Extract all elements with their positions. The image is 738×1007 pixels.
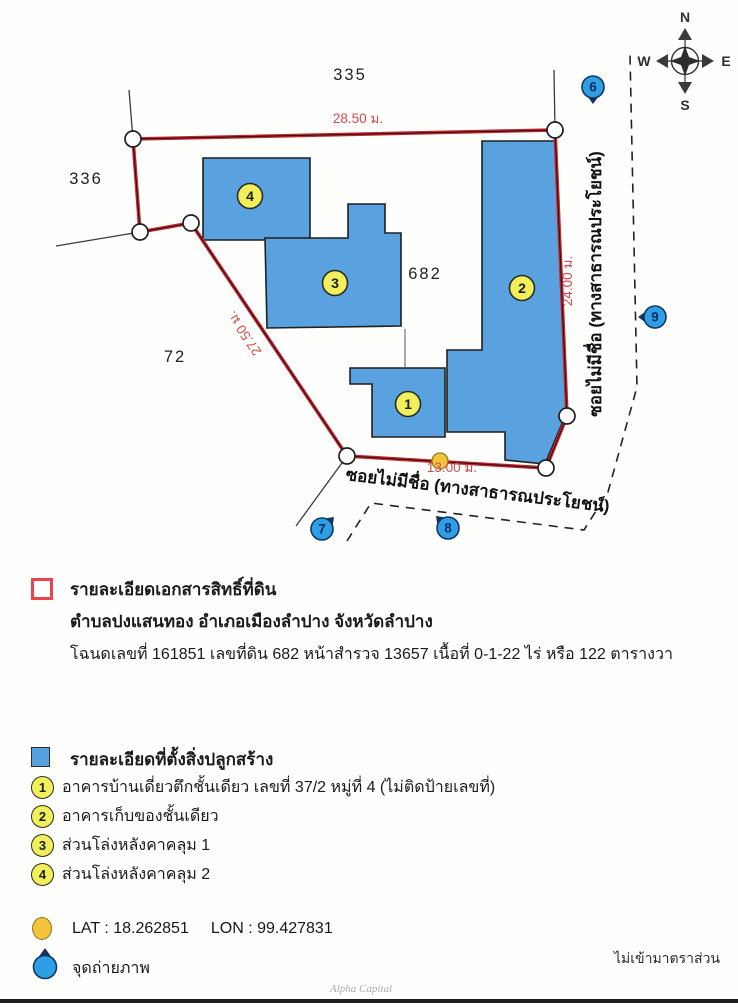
- building-legend-number-2: 2: [31, 805, 54, 828]
- buildings-legend-swatch: [31, 747, 50, 767]
- parcel-label-682: 682: [408, 265, 442, 283]
- compass-south-arrow: [678, 82, 692, 94]
- compass-s-label: S: [680, 97, 689, 113]
- building-legend-item-2: 2 อาคารเก็บของชั้นเดียว: [31, 804, 219, 829]
- building-marker-2: 2: [510, 276, 535, 301]
- building-legend-label-1: อาคารบ้านเดี่ยวตึกชั้นเดียว เลขที่ 37/2 …: [62, 775, 495, 800]
- not-to-scale-note: ไม่เข้ามาตราส่วน: [614, 948, 720, 970]
- deed-legend-swatch: [31, 578, 53, 600]
- building-marker-4: 4: [238, 184, 263, 209]
- photo-marker-7: 7: [311, 510, 341, 540]
- street-label-right: ซอยไม่มีชื่อ (ทางสาธารณประโยชน์): [583, 151, 605, 417]
- compass-west-arrow: [656, 54, 668, 68]
- compass-rose: N S W E: [637, 9, 730, 113]
- buildings-legend-title: รายละเอียดที่ตั้งสิ่งปลูกสร้าง: [70, 746, 273, 773]
- building-legend-number-3: 3: [31, 834, 54, 857]
- svg-text:2: 2: [518, 280, 526, 296]
- svg-text:9: 9: [651, 310, 659, 325]
- lon-value: LON : 99.427831: [211, 920, 333, 937]
- svg-text:1: 1: [404, 396, 412, 412]
- svg-text:8: 8: [444, 521, 452, 536]
- parcel-label-335: 335: [333, 66, 367, 84]
- compass-e-label: E: [721, 53, 730, 69]
- building-marker-1: 1: [396, 392, 421, 417]
- svg-text:6: 6: [589, 80, 597, 95]
- watermark: Alpha Capital: [330, 983, 392, 995]
- building-legend-label-3: ส่วนโล่งหลังคาคลุม 1: [62, 833, 210, 858]
- lat-value: LAT : 18.262851: [72, 920, 189, 937]
- building-legend-label-2: อาคารเก็บของชั้นเดียว: [62, 804, 219, 829]
- compass-north-arrow: [678, 28, 692, 40]
- survey-document-page: 335 336 72 682 28.50 ม. 24.00 ม. 27.50 ม…: [0, 0, 738, 1007]
- measurement-left-diagonal: 27.50 ม.: [224, 309, 265, 359]
- compass-east-arrow: [702, 54, 714, 68]
- svg-text:7: 7: [318, 522, 326, 537]
- compass-w-label: W: [637, 53, 651, 69]
- street-label-bottom: ซอยไม่มีชื่อ (ทางสาธารณประโยชน์): [345, 462, 611, 516]
- building-legend-number-1: 1: [31, 776, 54, 799]
- svg-text:4: 4: [246, 188, 254, 204]
- deed-title: รายละเอียดเอกสารสิทธิ์ที่ดิน: [70, 576, 276, 603]
- compass-star: [670, 46, 700, 76]
- lat-lon-dot: [32, 917, 52, 940]
- building-legend-number-4: 4: [31, 863, 54, 886]
- measurement-right: 24.00 ม.: [560, 256, 575, 306]
- building-legend-item-3: 3 ส่วนโล่งหลังคาคลุม 1: [31, 833, 210, 858]
- building-2-shape: [447, 141, 566, 464]
- parcel-label-336: 336: [69, 170, 103, 188]
- deed-details: โฉนดเลขที่ 161851 เลขที่ดิน 682 หน้าสำรว…: [70, 642, 673, 667]
- deed-location: ตำบลปงแสนทอง อำเภอเมืองลำปาง จังหวัดลำปา…: [70, 608, 433, 635]
- svg-text:3: 3: [331, 275, 339, 291]
- page-bottom-rule: [0, 999, 738, 1003]
- photo-marker-6: 6: [582, 76, 604, 104]
- photo-point-legend-label: จุดถ่ายภาพ: [72, 956, 150, 981]
- measurement-top: 28.50 ม.: [333, 111, 383, 126]
- compass-n-label: N: [680, 9, 690, 25]
- lat-lon-text: LAT : 18.262851LON : 99.427831: [72, 920, 355, 938]
- photo-point-legend-icon: [28, 946, 62, 982]
- photo-marker-9: 9: [638, 306, 666, 328]
- parcel-map: 335 336 72 682 28.50 ม. 24.00 ม. 27.50 ม…: [0, 0, 738, 565]
- building-legend-label-4: ส่วนโล่งหลังคาคลุม 2: [62, 862, 210, 887]
- measurement-bottom: 13.00 ม.: [427, 460, 477, 475]
- building-legend-item-1: 1 อาคารบ้านเดี่ยวตึกชั้นเดียว เลขที่ 37/…: [31, 775, 495, 800]
- building-legend-item-4: 4 ส่วนโล่งหลังคาคลุม 2: [31, 862, 210, 887]
- parcel-label-72: 72: [164, 348, 186, 366]
- building-marker-3: 3: [323, 271, 348, 296]
